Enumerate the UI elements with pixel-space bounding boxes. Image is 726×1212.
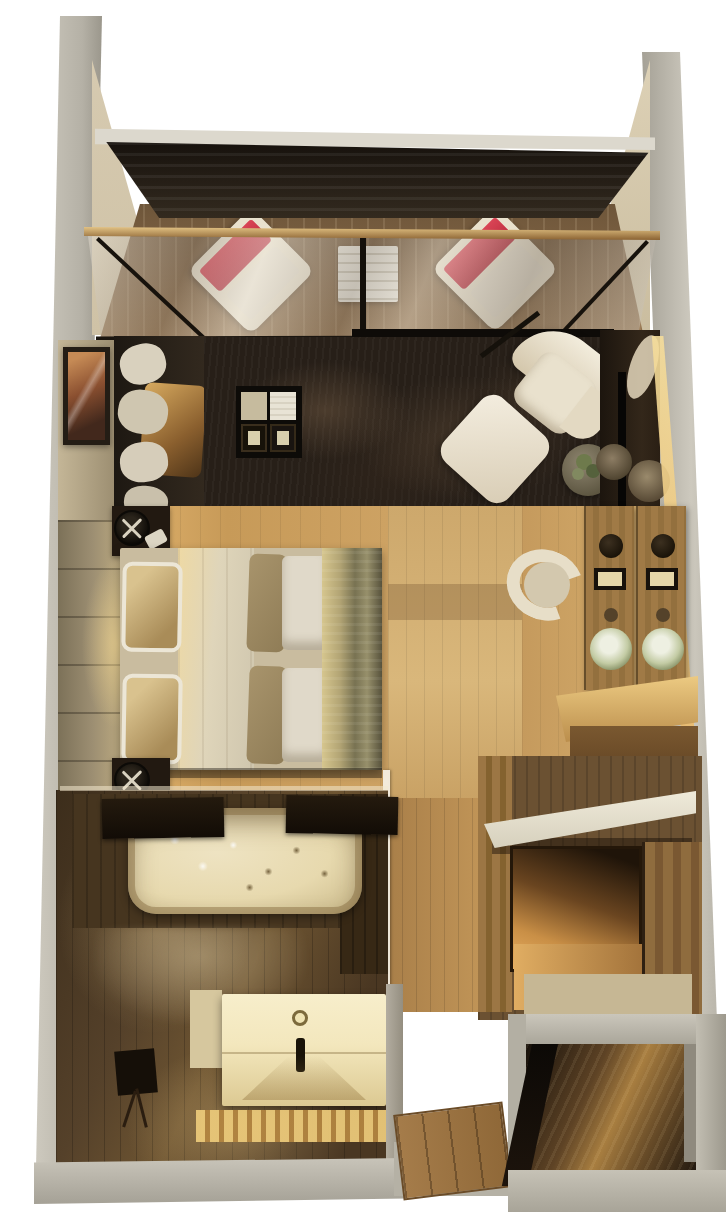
entry-wall-bottom bbox=[508, 1170, 726, 1212]
entry-region bbox=[0, 0, 726, 1212]
floorplan-render: Top-down 3D render of a compact studio s… bbox=[0, 0, 726, 1212]
entry-wall-top bbox=[508, 1014, 726, 1044]
